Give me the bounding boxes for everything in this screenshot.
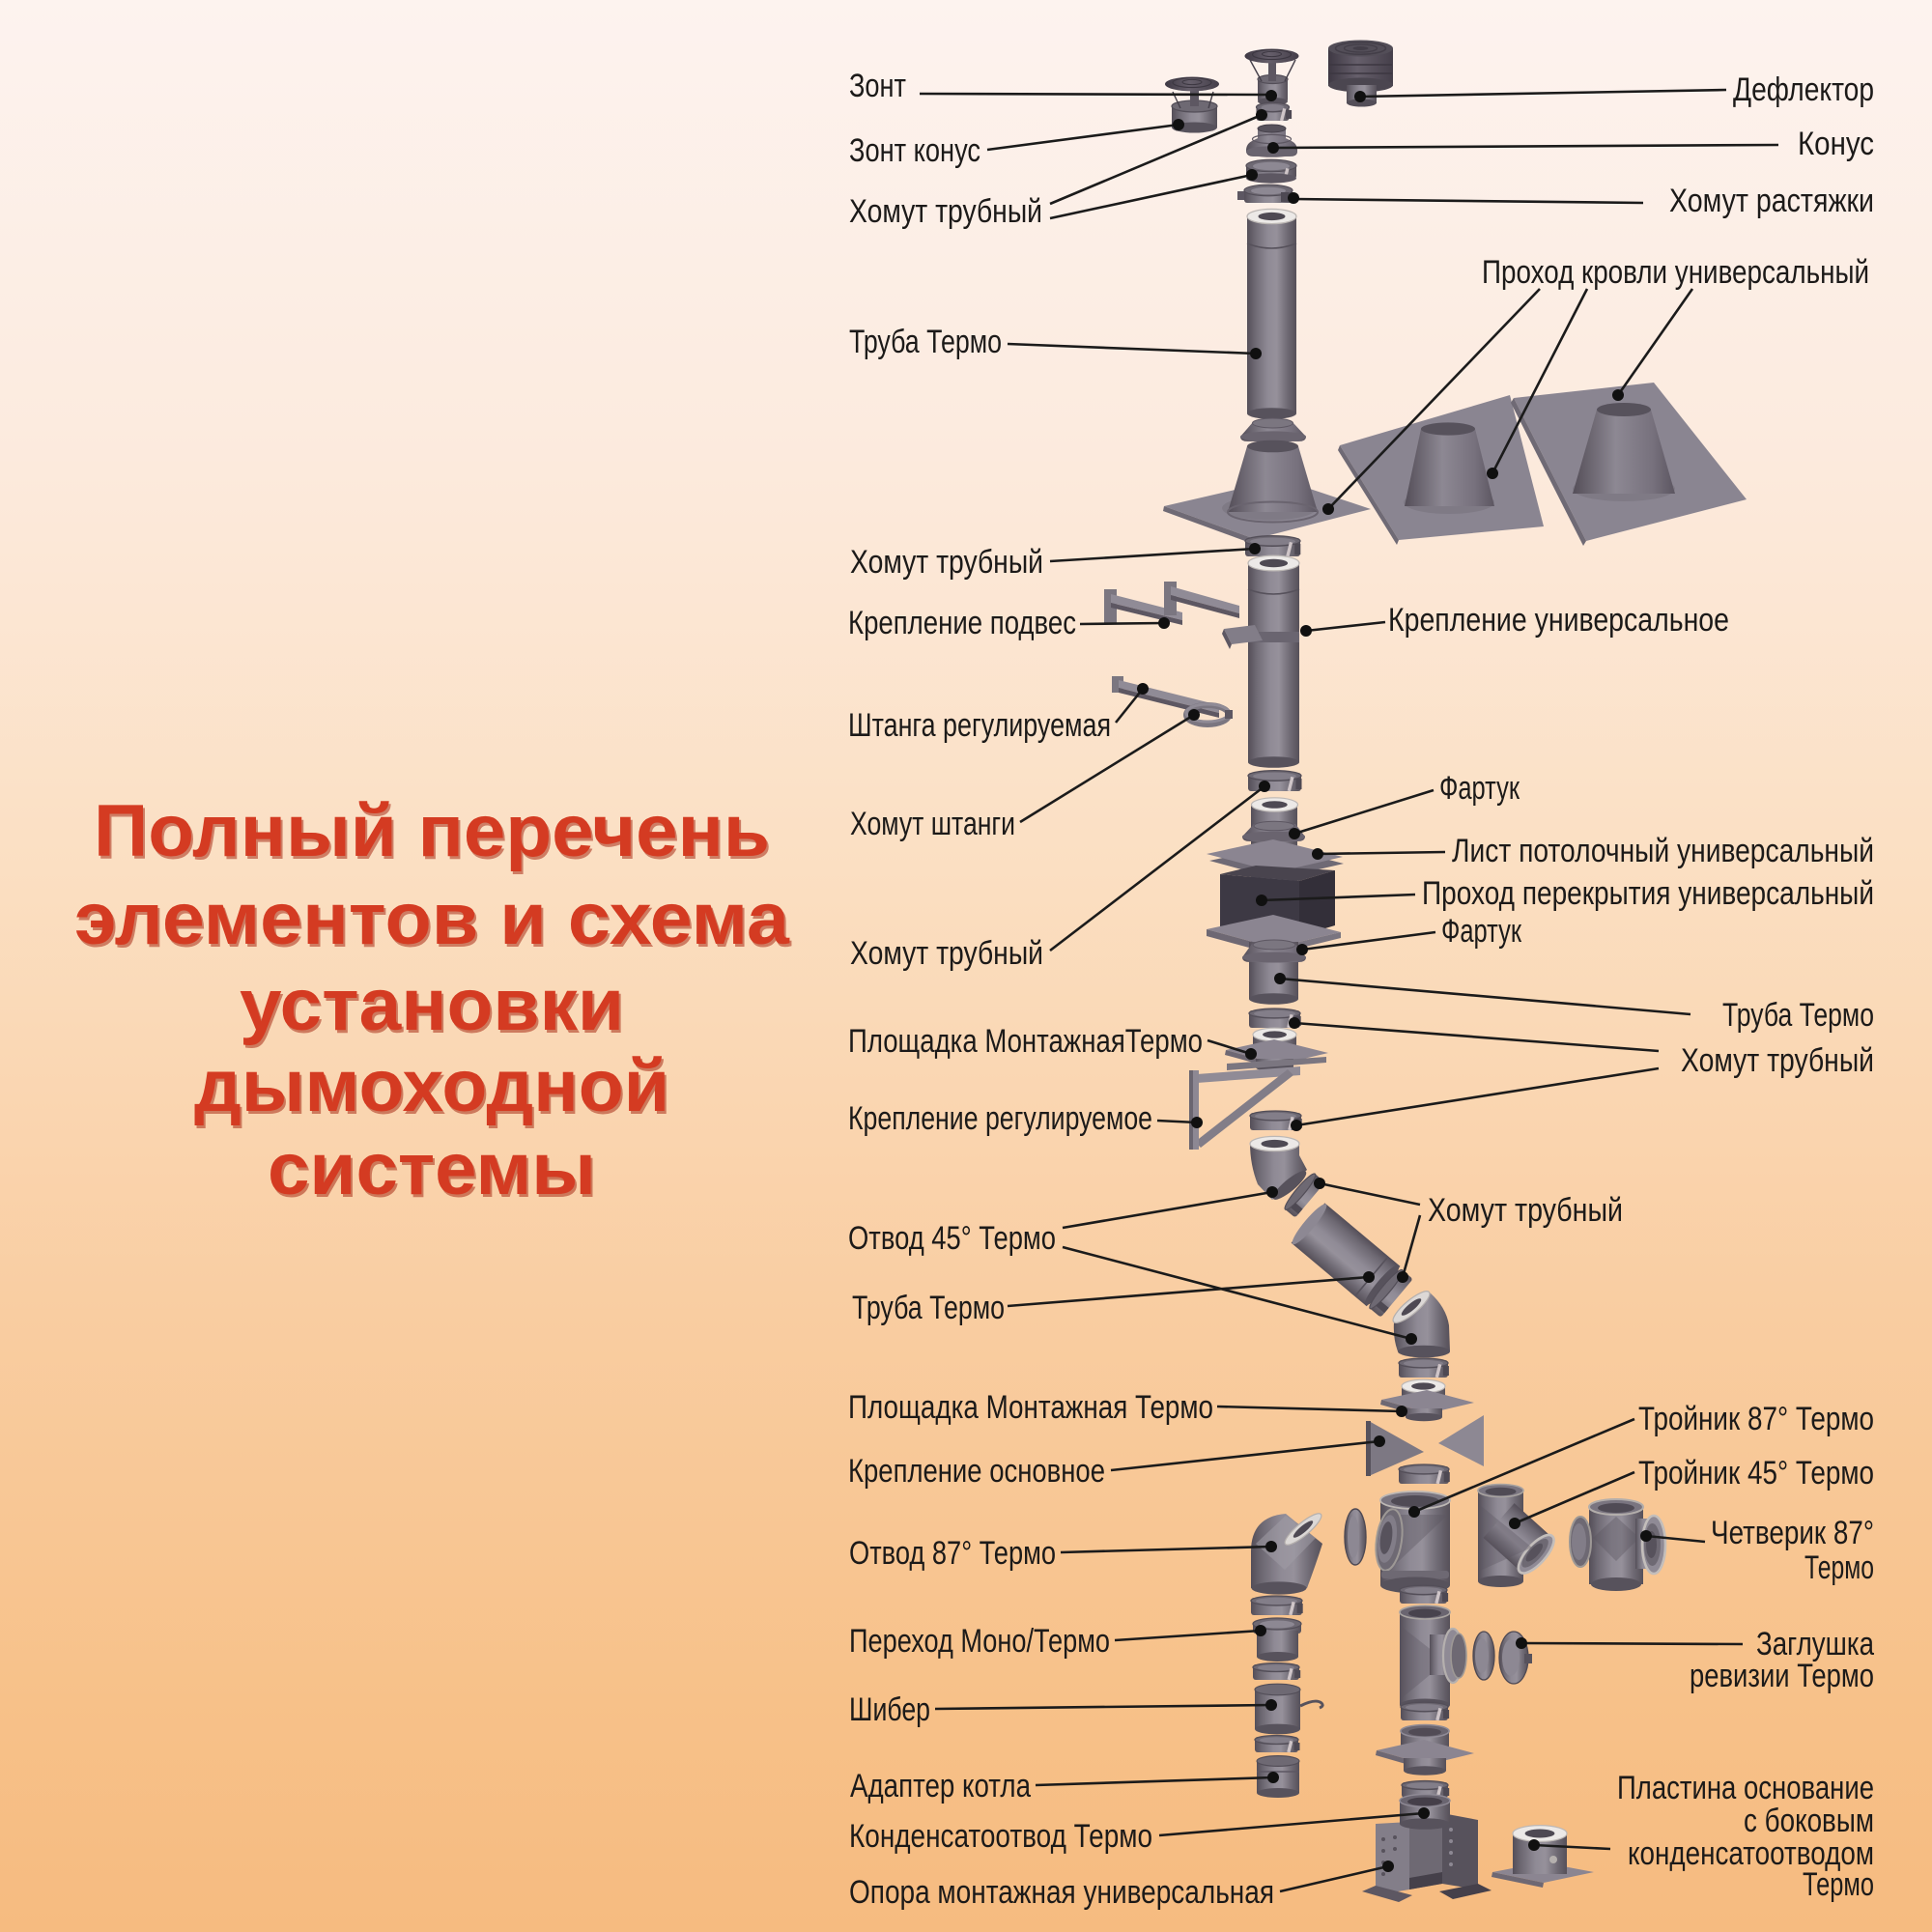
svg-text:Тройник 87° Термо: Тройник 87° Термо: [1638, 1401, 1874, 1437]
svg-text:Лист потолочный универсальный: Лист потолочный универсальный: [1452, 833, 1874, 869]
svg-text:Переход Моно/Термо: Переход Моно/Термо: [849, 1623, 1110, 1660]
svg-text:элементов и схема: элементов и схема: [74, 878, 790, 960]
svg-text:Фартук: Фартук: [1441, 913, 1522, 950]
svg-text:Крепление регулируемое: Крепление регулируемое: [848, 1100, 1152, 1137]
svg-text:Отвод 87° Термо: Отвод 87° Термо: [849, 1535, 1056, 1572]
svg-text:Хомут растяжки: Хомут растяжки: [1669, 183, 1874, 219]
svg-text:Хомут трубный: Хомут трубный: [1681, 1042, 1874, 1079]
svg-text:Хомут трубный: Хомут трубный: [850, 544, 1043, 581]
svg-text:установки: установки: [240, 964, 624, 1046]
svg-text:Труба Термо: Труба Термо: [852, 1290, 1005, 1326]
svg-text:Четверик 87°: Четверик 87°: [1711, 1515, 1874, 1551]
svg-text:Площадка МонтажнаяТермо: Площадка МонтажнаяТермо: [848, 1023, 1203, 1060]
svg-text:Хомут трубный: Хомут трубный: [849, 193, 1042, 230]
svg-text:Крепление универсальное: Крепление универсальное: [1388, 602, 1729, 639]
svg-text:Фартук: Фартук: [1439, 770, 1520, 807]
svg-text:Штанга регулируемая: Штанга регулируемая: [848, 707, 1111, 744]
svg-text:Конус: Конус: [1798, 126, 1874, 162]
svg-text:Хомут трубный: Хомут трубный: [1428, 1192, 1623, 1229]
svg-text:Тройник 45° Термо: Тройник 45° Термо: [1638, 1455, 1874, 1492]
svg-text:Труба Термо: Труба Термо: [1722, 997, 1874, 1034]
svg-text:Шибер: Шибер: [849, 1691, 930, 1728]
svg-text:дымоходной: дымоходной: [194, 1045, 669, 1127]
svg-text:Труба Термо: Труба Термо: [849, 324, 1002, 360]
svg-text:Крепление подвес: Крепление подвес: [848, 605, 1076, 641]
svg-text:Конденсатоотвод Термо: Конденсатоотвод Термо: [849, 1818, 1152, 1855]
svg-text:Хомут трубный: Хомут трубный: [850, 935, 1043, 972]
svg-text:Отвод 45° Термо: Отвод 45° Термо: [848, 1220, 1056, 1257]
svg-text:Адаптер котла: Адаптер котла: [850, 1768, 1031, 1804]
svg-text:Опора монтажная универсальная: Опора монтажная универсальная: [849, 1874, 1274, 1911]
svg-text:Проход кровли универсальный: Проход кровли универсальный: [1482, 254, 1869, 291]
svg-text:Проход перекрытия универсальны: Проход перекрытия универсальный: [1422, 875, 1874, 912]
svg-text:Зонт конус: Зонт конус: [849, 132, 980, 169]
svg-text:Площадка Монтажная Термо: Площадка Монтажная Термо: [848, 1389, 1213, 1426]
svg-text:с боковым: с боковым: [1744, 1803, 1874, 1839]
svg-text:Крепление основное: Крепление основное: [848, 1453, 1105, 1490]
svg-text:Зонт: Зонт: [849, 68, 906, 104]
svg-text:Дефлектор: Дефлектор: [1733, 71, 1874, 108]
svg-text:Полный перечень: Полный перечень: [94, 790, 770, 872]
svg-text:Хомут штанги: Хомут штанги: [850, 806, 1015, 842]
svg-text:системы: системы: [268, 1128, 596, 1210]
svg-text:Термо: Термо: [1804, 1549, 1874, 1586]
svg-text:Пластина основание: Пластина основание: [1617, 1770, 1874, 1806]
svg-text:ревизии Термо: ревизии Термо: [1690, 1658, 1874, 1694]
svg-text:Термо: Термо: [1803, 1866, 1874, 1903]
